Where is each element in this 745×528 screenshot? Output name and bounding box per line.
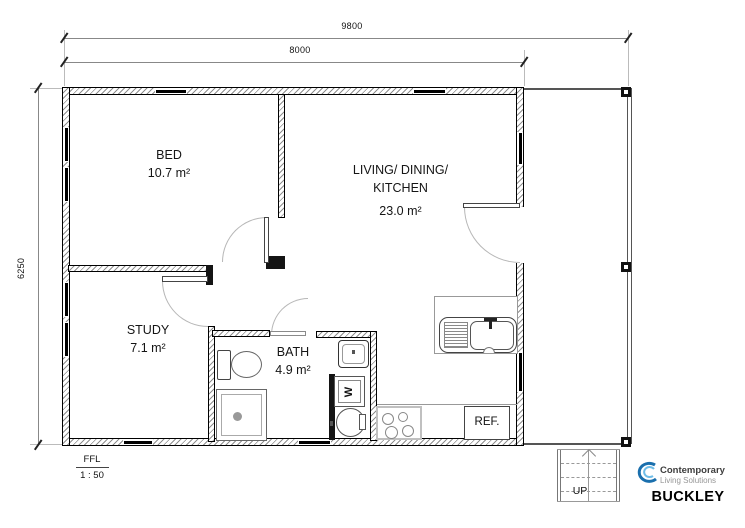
living-name-line1: LIVING/ DINING/ — [328, 161, 473, 179]
extension-line — [524, 50, 525, 86]
window-glazing — [124, 441, 152, 444]
window-glazing — [156, 90, 186, 93]
bath-area: 4.9 m² — [243, 361, 343, 379]
bed-door-leaf — [264, 217, 269, 263]
window — [516, 132, 524, 165]
living-area: 23.0 m² — [328, 202, 473, 220]
dimension-overall-width: 9800 — [324, 21, 380, 31]
floor-plan-canvas: 9800 8000 6250 — [0, 0, 745, 528]
dimension-line-overall-width — [64, 38, 628, 39]
room-label-living: LIVING/ DINING/ KITCHEN 23.0 m² — [328, 161, 473, 220]
extension-line — [30, 444, 62, 445]
deck-post — [621, 87, 631, 97]
window — [516, 352, 524, 392]
deck-edge-top — [524, 88, 628, 90]
window — [62, 127, 70, 162]
window — [413, 87, 446, 95]
ffl-underline — [76, 467, 109, 468]
fridge-label: REF. — [465, 407, 509, 438]
fridge: REF. — [464, 406, 510, 440]
burner — [382, 413, 394, 425]
sink-drainer — [444, 322, 468, 348]
dimension-line-building-width — [64, 62, 524, 63]
bed-name: BED — [119, 146, 219, 164]
window — [155, 87, 187, 95]
study-name: STUDY — [98, 321, 198, 339]
window-glazing — [65, 168, 68, 201]
bath-name: BATH — [243, 343, 343, 361]
washing-machine: W — [334, 376, 365, 407]
vanity-tap — [352, 350, 355, 354]
sink-tap-icon — [489, 320, 492, 329]
deck-post — [621, 437, 631, 447]
stair-stringer — [557, 449, 561, 502]
washing-machine-label: W — [335, 377, 364, 406]
ffl-label: FFL — [72, 454, 112, 465]
bed-area: 10.7 m² — [119, 164, 219, 182]
stairs-up-label: UP — [566, 485, 594, 497]
bath-door-swing — [271, 298, 308, 335]
living-name-line2: KITCHEN — [328, 179, 473, 197]
kitchen-bench-edge — [377, 404, 517, 405]
brand-swoosh-icon — [634, 461, 660, 485]
interior-wall-laundry-top — [316, 331, 377, 338]
interior-wall-bath-top — [212, 330, 270, 337]
dimension-line-depth — [38, 88, 39, 445]
window — [62, 322, 70, 357]
room-label-study: STUDY 7.1 m² — [98, 321, 198, 357]
burner — [385, 426, 398, 439]
window-glazing — [299, 441, 330, 444]
plan-name: BUCKLEY — [650, 489, 726, 505]
stair-stringer — [616, 449, 620, 502]
window — [123, 438, 153, 446]
brand-logo — [634, 461, 660, 485]
shower-drain — [233, 412, 242, 421]
scale-label: 1 : 50 — [72, 470, 112, 481]
window — [62, 167, 70, 202]
window-glazing — [519, 353, 522, 391]
stair-tread — [561, 477, 616, 478]
window — [298, 438, 331, 446]
window-glazing — [65, 323, 68, 356]
laundry-tub-tap — [359, 414, 366, 430]
interior-wall-bath-left — [208, 326, 215, 442]
dimension-depth: 6250 — [16, 238, 26, 298]
stairs: UP — [557, 449, 620, 502]
bed-door-swing — [222, 217, 267, 262]
dimension-building-width: 8000 — [272, 45, 328, 55]
room-label-bath: BATH 4.9 m² — [243, 343, 343, 379]
brand-name-line1: Contemporary — [660, 465, 725, 476]
interior-wall-bed-study — [68, 265, 213, 272]
window-glazing — [65, 283, 68, 316]
interior-wall-bed-living — [278, 94, 285, 218]
brand-name-line2: Living Solutions — [660, 476, 716, 485]
study-door-leaf — [162, 276, 208, 282]
bath-door-leaf — [270, 331, 306, 336]
sink-bowl — [470, 321, 514, 350]
room-label-bed: BED 10.7 m² — [119, 146, 219, 182]
burner — [402, 425, 414, 437]
vanity-basin-inner — [342, 344, 365, 364]
exterior-wall-top — [62, 87, 524, 95]
window-glazing — [65, 128, 68, 161]
laundry-tub-spout — [330, 421, 333, 426]
window-glazing — [519, 133, 522, 164]
stair-bottom-edge — [557, 501, 620, 502]
burner — [398, 412, 408, 422]
deck-post — [621, 262, 631, 272]
study-area: 7.1 m² — [98, 339, 198, 357]
deck-edge-bottom — [524, 443, 628, 445]
up-arrow-icon — [582, 449, 596, 463]
cooktop — [376, 406, 422, 440]
sink-notch — [483, 347, 495, 353]
window — [62, 282, 70, 317]
toilet-cistern — [217, 350, 231, 380]
window-glazing — [414, 90, 445, 93]
